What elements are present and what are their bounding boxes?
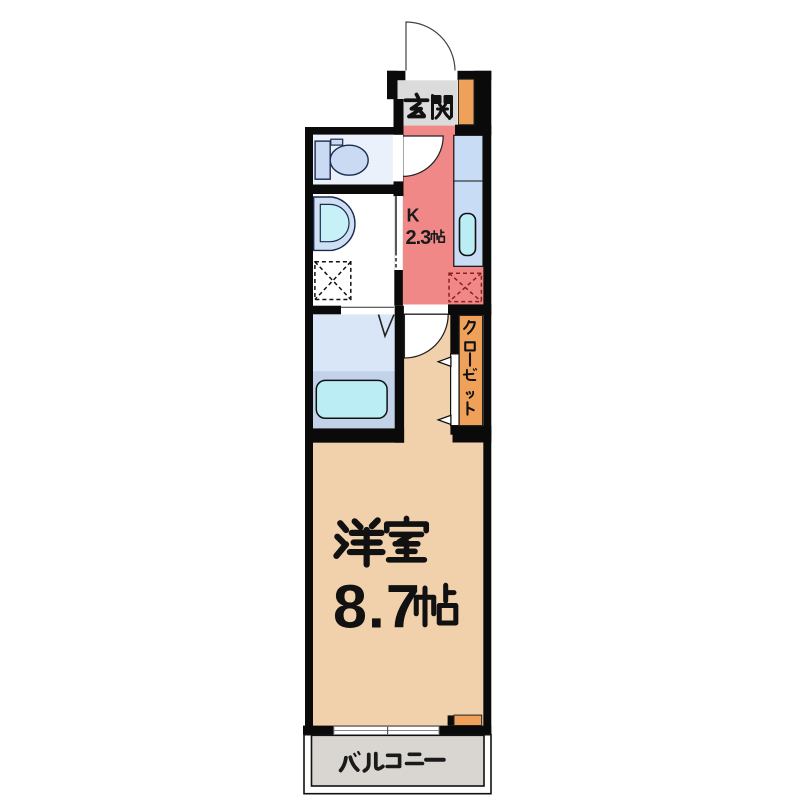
svg-text:K: K: [407, 206, 420, 226]
svg-text:8.7: 8.7: [333, 573, 421, 641]
svg-text:2.3: 2.3: [406, 227, 432, 249]
